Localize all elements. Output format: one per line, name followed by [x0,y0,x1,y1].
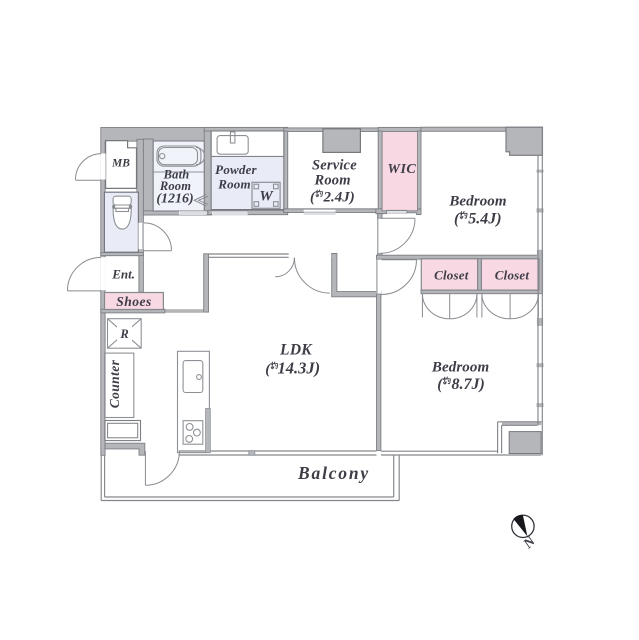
svg-text:Room: Room [313,173,350,189]
svg-text:Ent.: Ent. [111,267,135,282]
svg-text:(1216): (1216) [156,192,193,207]
svg-text:5.4J): 5.4J) [468,211,501,228]
svg-text:14.3J): 14.3J) [278,359,321,378]
svg-text:R: R [119,327,128,341]
svg-text:LDK: LDK [279,342,313,359]
svg-text:W: W [259,189,274,205]
svg-text:Shoes: Shoes [116,294,152,309]
svg-text:Powder: Powder [215,162,257,177]
svg-text:Counter: Counter [107,359,122,408]
svg-text:Balcony: Balcony [297,463,370,483]
svg-text:Closet: Closet [434,268,469,283]
svg-text:Room: Room [217,177,251,192]
svg-text:MB: MB [111,158,130,170]
svg-text:Closet: Closet [495,268,530,283]
svg-text:Service: Service [312,158,357,174]
svg-text:WIC: WIC [388,162,417,177]
svg-text:Bedroom: Bedroom [448,194,506,210]
svg-text:Bedroom: Bedroom [431,360,489,376]
svg-text:2.4J): 2.4J) [323,190,355,206]
svg-text:8.7J): 8.7J) [452,376,485,393]
